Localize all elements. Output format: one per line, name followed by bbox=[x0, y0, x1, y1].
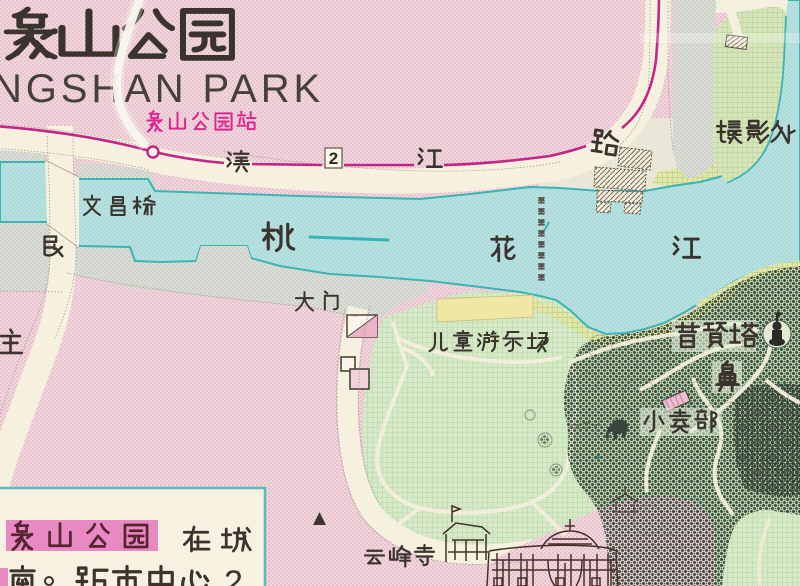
svg-text:2: 2 bbox=[329, 149, 338, 168]
svg-text:2: 2 bbox=[224, 564, 243, 586]
svg-text:NGSHAN PARK: NGSHAN PARK bbox=[0, 67, 324, 111]
